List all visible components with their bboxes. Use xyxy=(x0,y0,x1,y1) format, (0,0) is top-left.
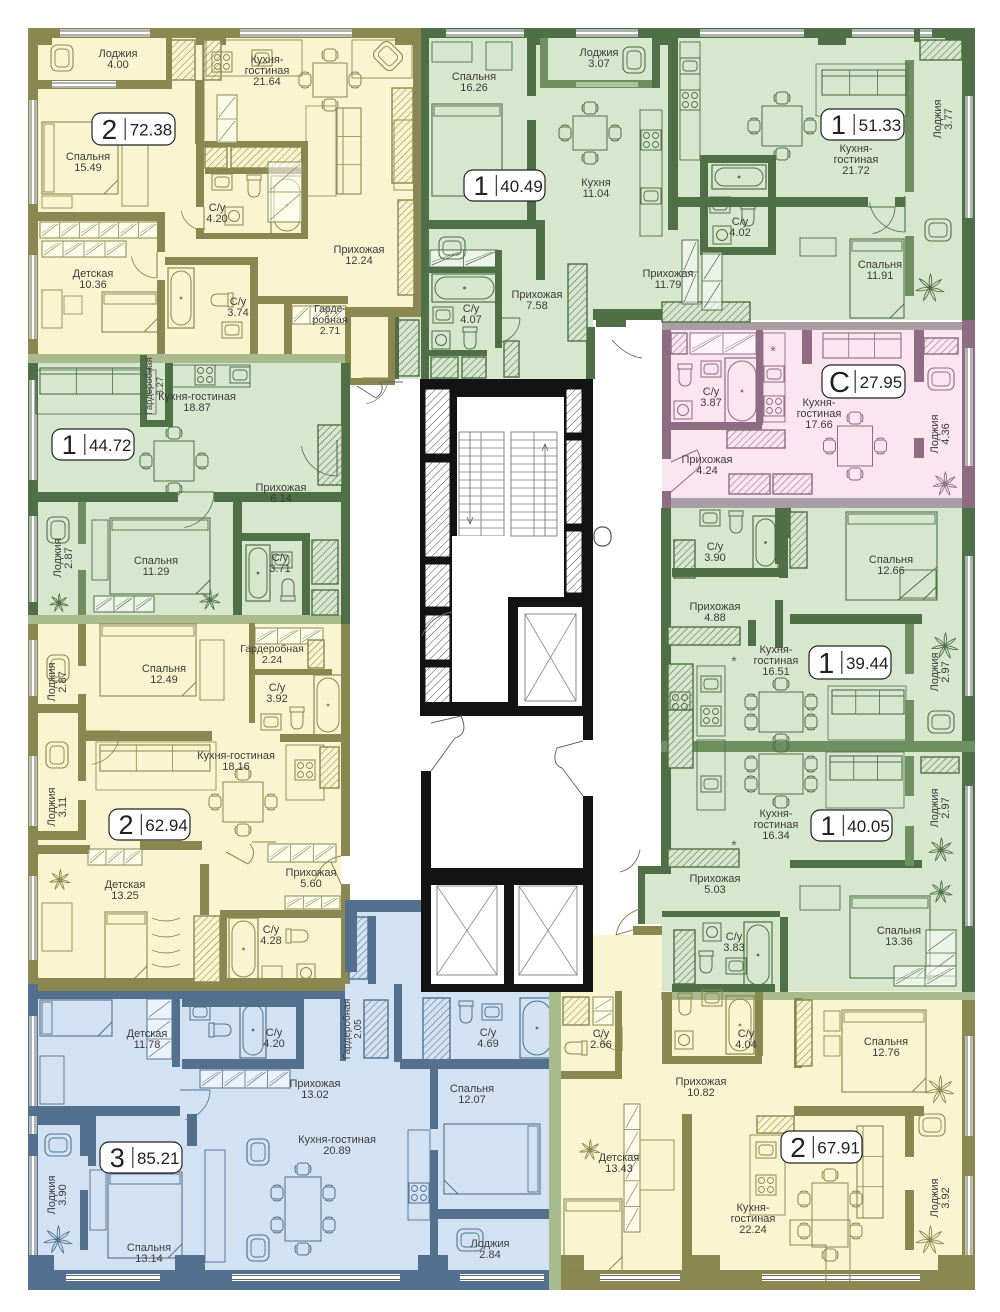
svg-text:3.74: 3.74 xyxy=(227,307,248,319)
svg-text:67.91: 67.91 xyxy=(817,1139,860,1158)
svg-text:5.60: 5.60 xyxy=(300,878,321,890)
svg-text:13.43: 13.43 xyxy=(605,1163,633,1175)
svg-text:85.21: 85.21 xyxy=(137,1149,180,1168)
svg-text:12.66: 12.66 xyxy=(877,565,905,577)
svg-text:72.38: 72.38 xyxy=(130,121,173,140)
svg-text:3.71: 3.71 xyxy=(269,563,290,575)
svg-text:62.94: 62.94 xyxy=(145,816,188,835)
svg-text:2.71: 2.71 xyxy=(320,325,341,337)
svg-text:4.20: 4.20 xyxy=(263,1038,284,1050)
svg-text:2.24: 2.24 xyxy=(262,654,283,666)
svg-text:4.20: 4.20 xyxy=(206,213,227,225)
svg-text:2.97: 2.97 xyxy=(940,797,952,818)
svg-text:2.05: 2.05 xyxy=(353,1019,364,1039)
svg-text:10.82: 10.82 xyxy=(687,1087,715,1099)
svg-text:5.03: 5.03 xyxy=(704,884,725,896)
svg-text:11.04: 11.04 xyxy=(583,188,610,200)
svg-text:3.92: 3.92 xyxy=(266,693,287,705)
svg-text:13.02: 13.02 xyxy=(301,1089,329,1101)
svg-text:13.36: 13.36 xyxy=(885,936,913,948)
svg-text:15.49: 15.49 xyxy=(74,162,102,174)
svg-text:2: 2 xyxy=(790,1132,806,1163)
svg-text:2.66: 2.66 xyxy=(590,1039,611,1051)
svg-text:3.11: 3.11 xyxy=(57,797,69,818)
svg-text:Гардеробная: Гардеробная xyxy=(341,999,353,1060)
svg-text:16.51: 16.51 xyxy=(762,666,790,678)
svg-text:13.14: 13.14 xyxy=(135,1253,163,1265)
svg-text:2.87: 2.87 xyxy=(63,547,75,568)
svg-text:4.36: 4.36 xyxy=(940,423,952,444)
svg-text:3.77: 3.77 xyxy=(943,108,955,129)
svg-text:6.14: 6.14 xyxy=(270,493,291,505)
svg-text:3.07: 3.07 xyxy=(588,58,609,70)
svg-text:4.69: 4.69 xyxy=(477,1038,498,1050)
svg-text:11.78: 11.78 xyxy=(134,1039,161,1051)
svg-text:21.64: 21.64 xyxy=(253,76,281,88)
svg-text:3.90: 3.90 xyxy=(57,1184,69,1205)
svg-text:12.49: 12.49 xyxy=(150,674,178,686)
svg-text:22.24: 22.24 xyxy=(739,1224,767,1236)
svg-text:C: C xyxy=(829,367,850,399)
svg-text:21.72: 21.72 xyxy=(842,165,870,177)
svg-text:17.66: 17.66 xyxy=(805,419,833,431)
svg-text:3: 3 xyxy=(110,1143,125,1173)
svg-text:16.26: 16.26 xyxy=(460,82,488,94)
svg-text:51.33: 51.33 xyxy=(859,116,902,135)
svg-text:10.36: 10.36 xyxy=(79,279,107,291)
svg-text:20.89: 20.89 xyxy=(323,1145,351,1157)
svg-text:40.49: 40.49 xyxy=(500,177,543,196)
svg-text:1: 1 xyxy=(818,648,834,680)
svg-text:2: 2 xyxy=(118,810,133,840)
svg-text:12.24: 12.24 xyxy=(345,255,373,267)
svg-text:3.90: 3.90 xyxy=(704,552,725,564)
svg-text:39.44: 39.44 xyxy=(846,654,889,673)
svg-text:*: * xyxy=(731,837,737,853)
svg-text:18.87: 18.87 xyxy=(183,402,211,414)
svg-text:2.97: 2.97 xyxy=(940,661,952,682)
svg-text:1: 1 xyxy=(820,811,835,841)
svg-text:4.07: 4.07 xyxy=(460,314,481,326)
svg-text:7.58: 7.58 xyxy=(526,300,547,312)
svg-text:11.79: 11.79 xyxy=(655,279,682,291)
svg-text:40.05: 40.05 xyxy=(847,817,890,836)
svg-text:12.07: 12.07 xyxy=(458,1094,486,1106)
svg-text:*: * xyxy=(770,343,776,360)
svg-text:1: 1 xyxy=(831,110,846,140)
svg-text:12.76: 12.76 xyxy=(872,1047,900,1059)
svg-text:Гардеробная: Гардеробная xyxy=(144,357,155,414)
svg-text:2: 2 xyxy=(102,114,118,145)
svg-text:16.34: 16.34 xyxy=(762,830,790,842)
svg-text:3.87: 3.87 xyxy=(700,397,721,409)
svg-text:11.29: 11.29 xyxy=(143,566,170,578)
svg-text:44.72: 44.72 xyxy=(89,436,132,455)
svg-text:4.00: 4.00 xyxy=(107,59,128,71)
svg-text:18.16: 18.16 xyxy=(222,761,250,773)
svg-text:27.95: 27.95 xyxy=(860,373,903,392)
svg-text:3.83: 3.83 xyxy=(723,942,744,954)
svg-text:3.92: 3.92 xyxy=(940,1187,952,1208)
svg-text:*: * xyxy=(731,653,737,669)
svg-text:4.24: 4.24 xyxy=(696,465,717,477)
svg-text:1: 1 xyxy=(62,430,77,460)
svg-text:4.02: 4.02 xyxy=(729,227,750,239)
svg-text:4.04: 4.04 xyxy=(735,1039,756,1051)
svg-text:11.91: 11.91 xyxy=(867,270,894,282)
svg-text:1: 1 xyxy=(473,171,488,201)
svg-text:2.87: 2.87 xyxy=(57,671,69,692)
svg-text:4.88: 4.88 xyxy=(704,612,725,624)
svg-text:13.25: 13.25 xyxy=(111,890,139,902)
svg-text:4.28: 4.28 xyxy=(260,935,281,947)
svg-text:3.27: 3.27 xyxy=(155,377,166,396)
svg-text:2.84: 2.84 xyxy=(479,1249,500,1261)
